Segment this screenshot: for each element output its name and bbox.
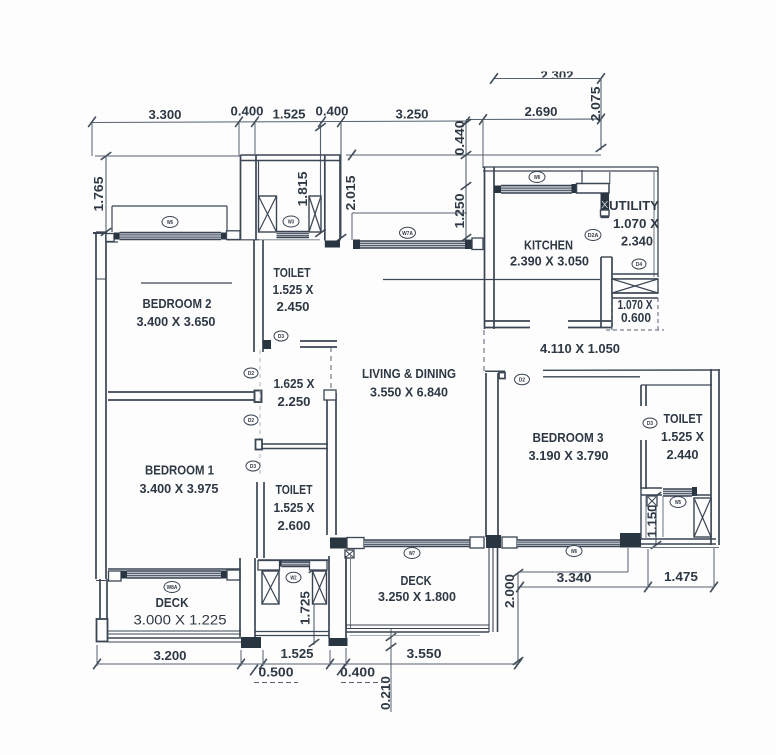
svg-text:3.250: 3.250 [396, 107, 429, 122]
svg-text:D3: D3 [647, 421, 654, 427]
svg-text:2.250: 2.250 [278, 395, 311, 409]
svg-text:TOILET: TOILET [664, 412, 703, 426]
svg-text:2.450: 2.450 [277, 300, 310, 314]
svg-text:2.600: 2.600 [278, 519, 311, 533]
svg-text:D2: D2 [248, 418, 254, 424]
svg-text:DECK: DECK [401, 574, 432, 588]
svg-text:W7: W7 [409, 551, 415, 557]
svg-text:TOILET: TOILET [276, 483, 313, 497]
svg-text:2.075: 2.075 [588, 87, 603, 122]
svg-text:D2: D2 [248, 371, 254, 377]
svg-text:0.440: 0.440 [452, 121, 467, 156]
svg-text:0.500: 0.500 [259, 665, 294, 680]
svg-text:3.190 X 3.790: 3.190 X 3.790 [529, 449, 609, 463]
svg-text:W8: W8 [534, 175, 541, 181]
svg-text:D2A: D2A [588, 233, 600, 239]
svg-text:2.440: 2.440 [667, 448, 699, 462]
svg-text:3.400 X 3.975: 3.400 X 3.975 [140, 482, 219, 496]
svg-text:1.725: 1.725 [298, 591, 313, 625]
svg-text:3.550 X 6.840: 3.550 X 6.840 [370, 386, 448, 400]
svg-text:3.550: 3.550 [407, 646, 442, 661]
svg-text:W3: W3 [288, 220, 295, 226]
svg-text:1.150: 1.150 [645, 505, 660, 538]
svg-text:0.400: 0.400 [316, 104, 349, 119]
svg-text:W5: W5 [675, 500, 682, 506]
svg-text:UTILITY: UTILITY [609, 199, 660, 213]
svg-text:3.000 X 1.225: 3.000 X 1.225 [134, 612, 227, 628]
svg-text:1.475: 1.475 [664, 569, 698, 584]
svg-text:KITCHEN: KITCHEN [524, 239, 573, 253]
svg-text:TOILET: TOILET [274, 266, 311, 280]
svg-text:W6: W6 [571, 549, 578, 555]
svg-text:D2: D2 [519, 378, 525, 384]
svg-text:2.015: 2.015 [343, 176, 358, 211]
svg-text:BEDROOM 3: BEDROOM 3 [533, 431, 604, 445]
svg-text:W2: W2 [290, 576, 296, 582]
svg-text:0.400: 0.400 [231, 104, 264, 119]
svg-text:1.250: 1.250 [452, 194, 467, 229]
svg-text:W7A: W7A [402, 231, 413, 237]
svg-text:0.400: 0.400 [340, 665, 375, 680]
svg-text:2.390 X 3.050: 2.390 X 3.050 [510, 255, 589, 269]
svg-text:1.525 X: 1.525 X [274, 501, 316, 515]
svg-text:1.070 X: 1.070 X [613, 217, 660, 231]
svg-text:1.525: 1.525 [273, 107, 306, 122]
svg-text:3.250 X 1.800: 3.250 X 1.800 [378, 590, 456, 604]
svg-text:W6: W6 [167, 220, 174, 226]
svg-text:1.815: 1.815 [295, 172, 310, 207]
svg-text:BEDROOM 2: BEDROOM 2 [143, 297, 212, 311]
svg-text:2.000: 2.000 [502, 574, 517, 608]
svg-text:3.340: 3.340 [557, 570, 592, 585]
svg-text:D3: D3 [278, 334, 285, 340]
svg-text:D3: D3 [250, 464, 257, 470]
svg-text:1.525 X: 1.525 X [661, 430, 705, 444]
svg-text:2.690: 2.690 [525, 104, 558, 119]
svg-text:1.765: 1.765 [91, 177, 106, 212]
svg-text:1.525: 1.525 [281, 646, 314, 661]
svg-text:1.525 X: 1.525 X [273, 283, 315, 297]
svg-text:0.600: 0.600 [621, 311, 651, 325]
svg-text:3.300: 3.300 [149, 107, 182, 122]
svg-text:4.110 X 1.050: 4.110 X 1.050 [540, 342, 620, 356]
svg-text:3.200: 3.200 [154, 648, 187, 663]
svg-text:DECK: DECK [156, 596, 189, 610]
svg-text:2.340: 2.340 [621, 235, 653, 249]
svg-text:1.070 X: 1.070 X [618, 298, 653, 312]
svg-text:BEDROOM 1: BEDROOM 1 [145, 464, 214, 478]
svg-text:W8A: W8A [167, 585, 178, 591]
svg-text:1.625 X: 1.625 X [274, 377, 316, 391]
svg-text:3.400 X 3.650: 3.400 X 3.650 [137, 315, 216, 329]
svg-text:D4: D4 [636, 262, 643, 268]
svg-text:LIVING & DINING: LIVING & DINING [362, 367, 456, 381]
